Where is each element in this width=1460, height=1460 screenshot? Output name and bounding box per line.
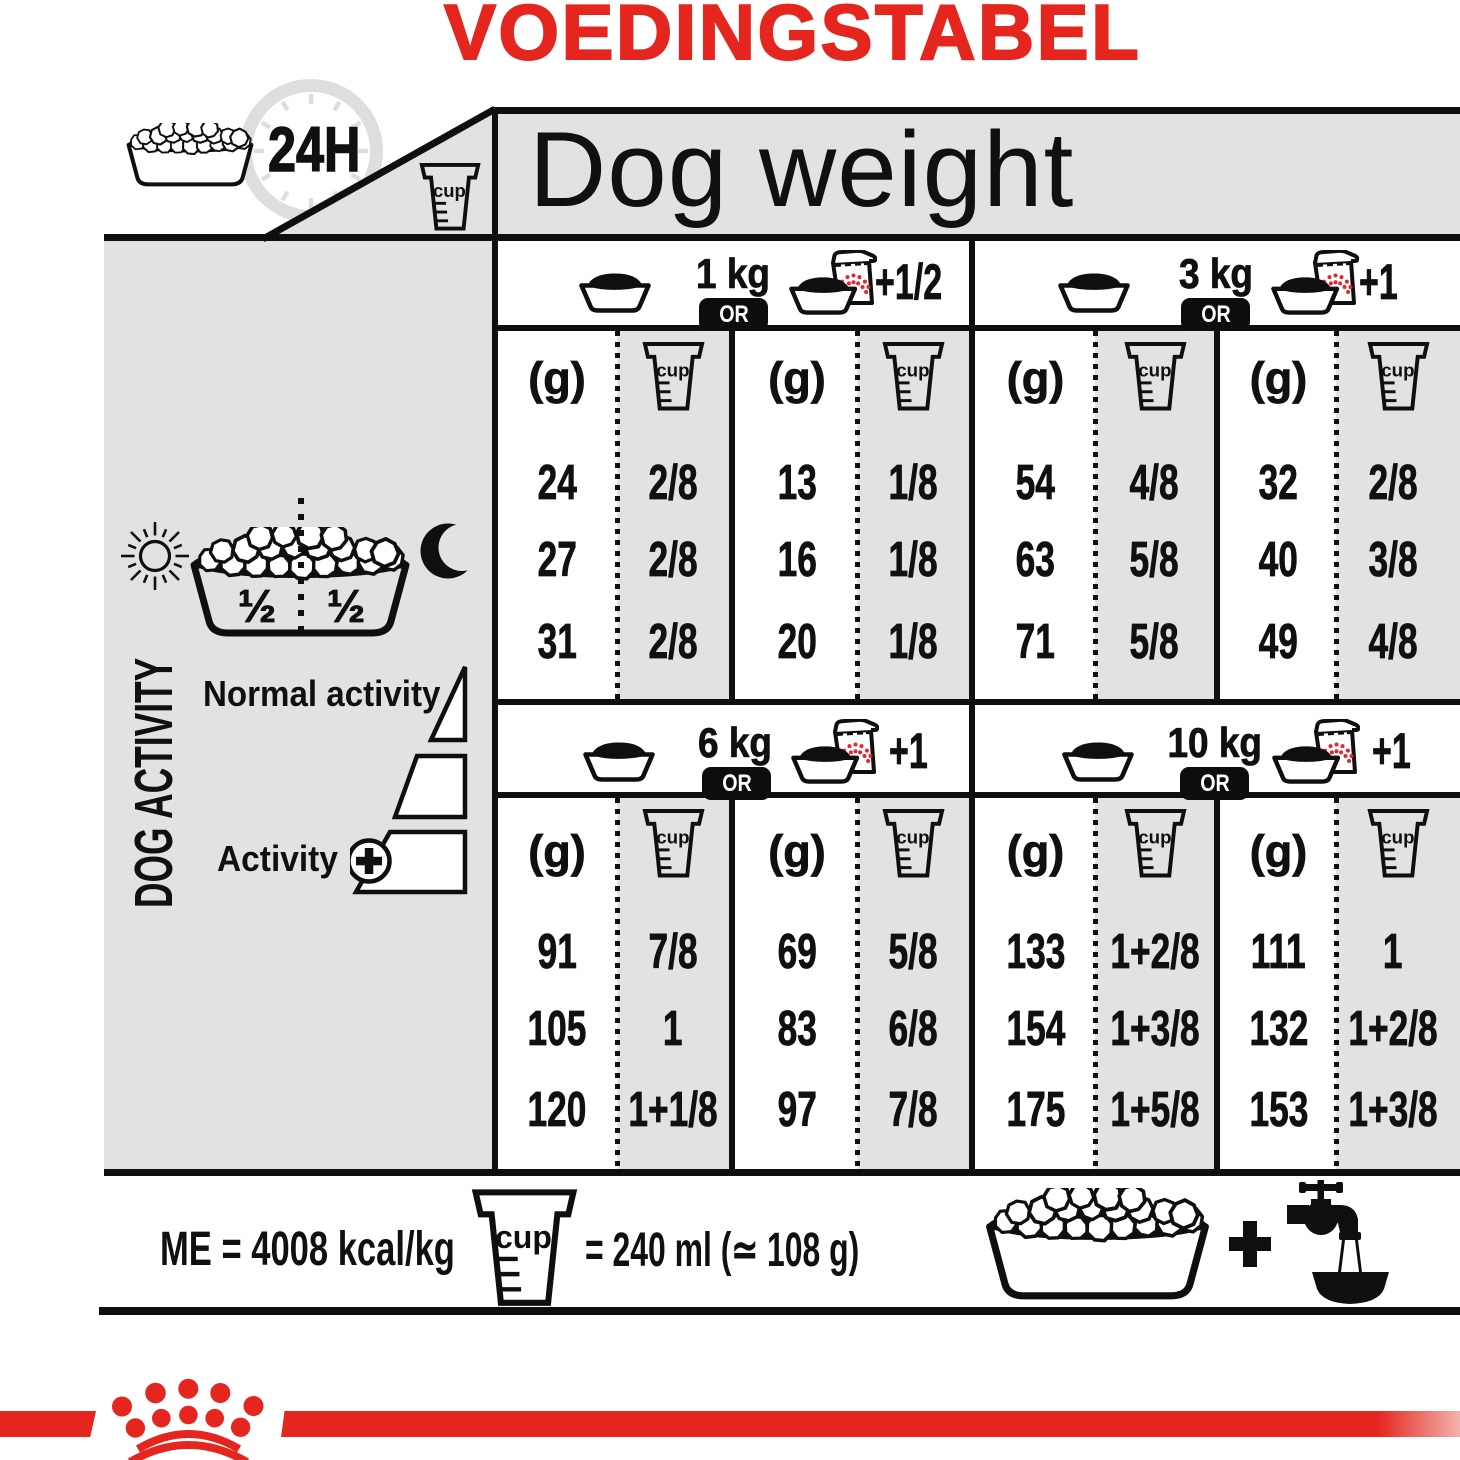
svg-text:cup: cup (1381, 360, 1414, 381)
svg-text:cup: cup (1138, 827, 1171, 848)
svg-text:cup: cup (1138, 360, 1171, 381)
svg-text:cup: cup (433, 180, 466, 201)
svg-text:cup: cup (1381, 827, 1414, 848)
svg-text:cup: cup (896, 360, 929, 381)
svg-text:cup: cup (656, 827, 689, 848)
svg-text:cup: cup (896, 827, 929, 848)
svg-text:cup: cup (656, 360, 689, 381)
